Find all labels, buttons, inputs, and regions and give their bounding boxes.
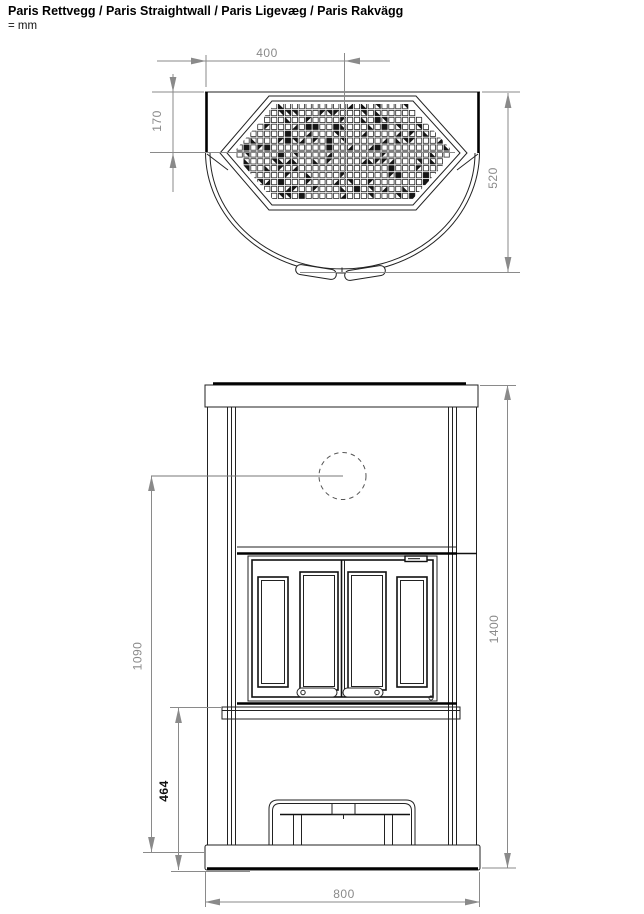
dim-464: 464 xyxy=(157,708,182,870)
front-view-body xyxy=(151,384,480,871)
dim-1090-label: 1090 xyxy=(131,642,145,671)
dim-520: 520 xyxy=(486,93,511,272)
shelf xyxy=(222,707,460,719)
dim-400-label: 400 xyxy=(256,46,278,60)
top-plate xyxy=(205,385,478,407)
dim-1400-label: 1400 xyxy=(487,615,501,644)
plinth xyxy=(205,845,480,870)
dim-1090: 1090 xyxy=(131,476,155,852)
door-handles xyxy=(297,688,383,697)
bench-notch xyxy=(332,804,355,815)
dim-520-label: 520 xyxy=(486,167,500,189)
top-view: 400 170 520 xyxy=(150,46,520,281)
dim-170-label: 170 xyxy=(150,110,164,132)
dim-800-label: 800 xyxy=(333,887,355,901)
flue-outlet xyxy=(151,453,366,500)
door-module xyxy=(248,556,437,701)
dim-464-label: 464 xyxy=(157,780,171,802)
dim-1400: 1400 xyxy=(487,385,511,868)
technical-drawing: 400 170 520 xyxy=(0,0,644,914)
front-view: 1090 464 1400 800 xyxy=(131,384,517,908)
door-latch xyxy=(405,556,427,562)
door-glass-panels xyxy=(258,572,427,690)
dim-400: 400 xyxy=(157,46,390,64)
grille-grid xyxy=(237,104,449,199)
bench-outer xyxy=(269,800,415,845)
dim-800: 800 xyxy=(205,887,480,905)
base-bench xyxy=(269,800,415,845)
